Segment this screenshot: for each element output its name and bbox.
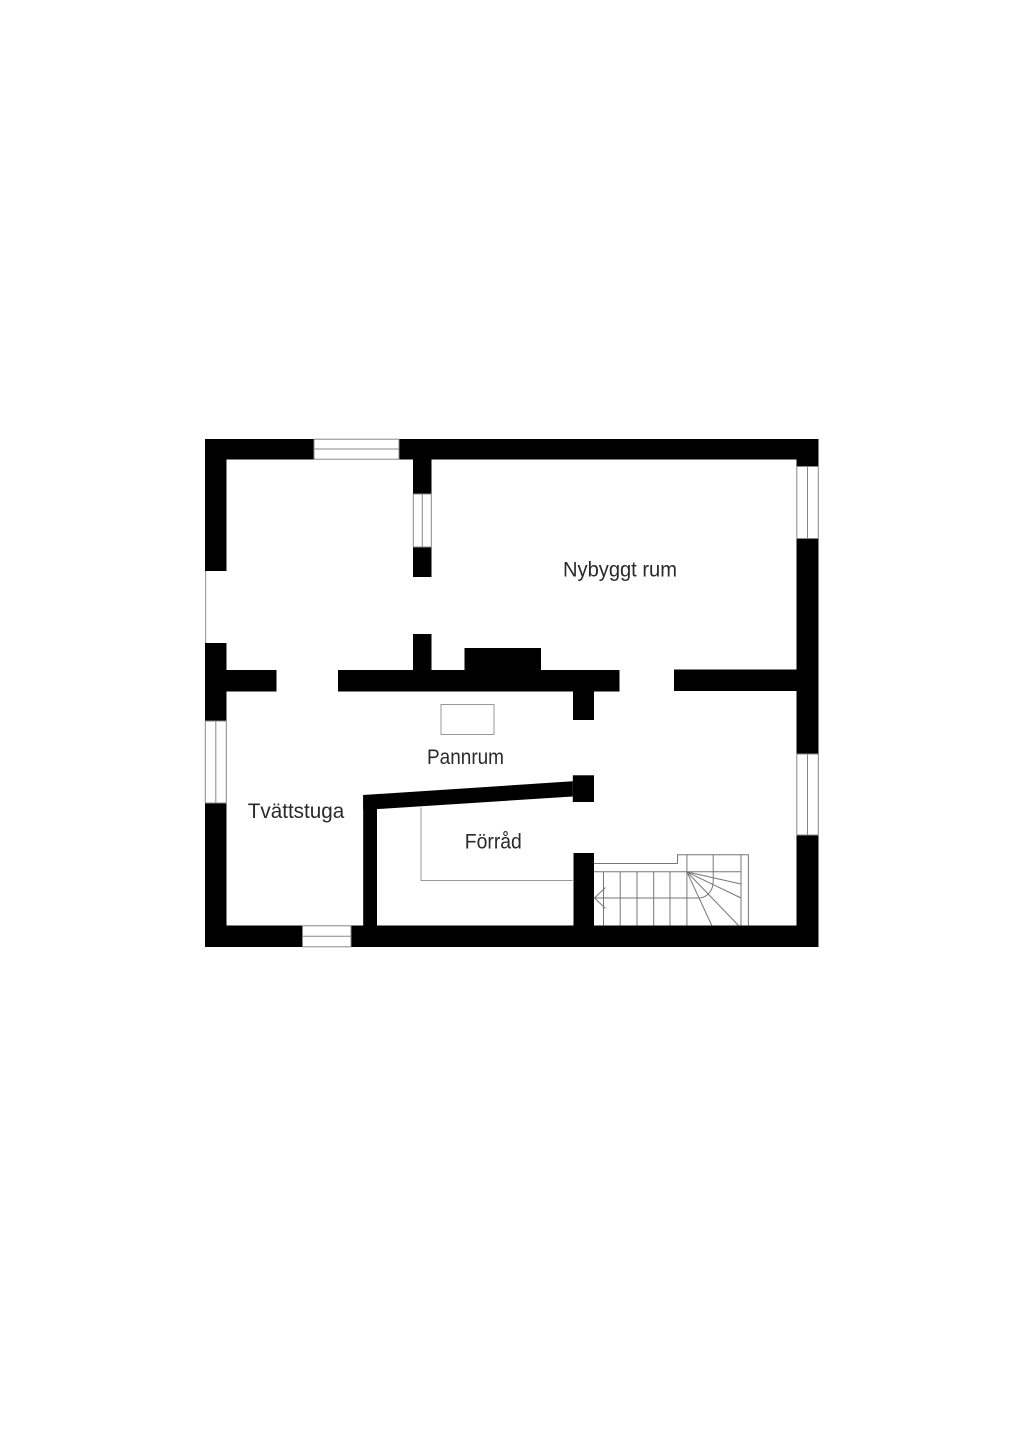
svg-text:Pannrum: Pannrum [427, 746, 504, 769]
svg-text:Tvättstuga: Tvättstuga [248, 800, 345, 823]
svg-text:Förråd: Förråd [465, 830, 522, 853]
svg-text:Nybyggt rum: Nybyggt rum [563, 559, 677, 582]
